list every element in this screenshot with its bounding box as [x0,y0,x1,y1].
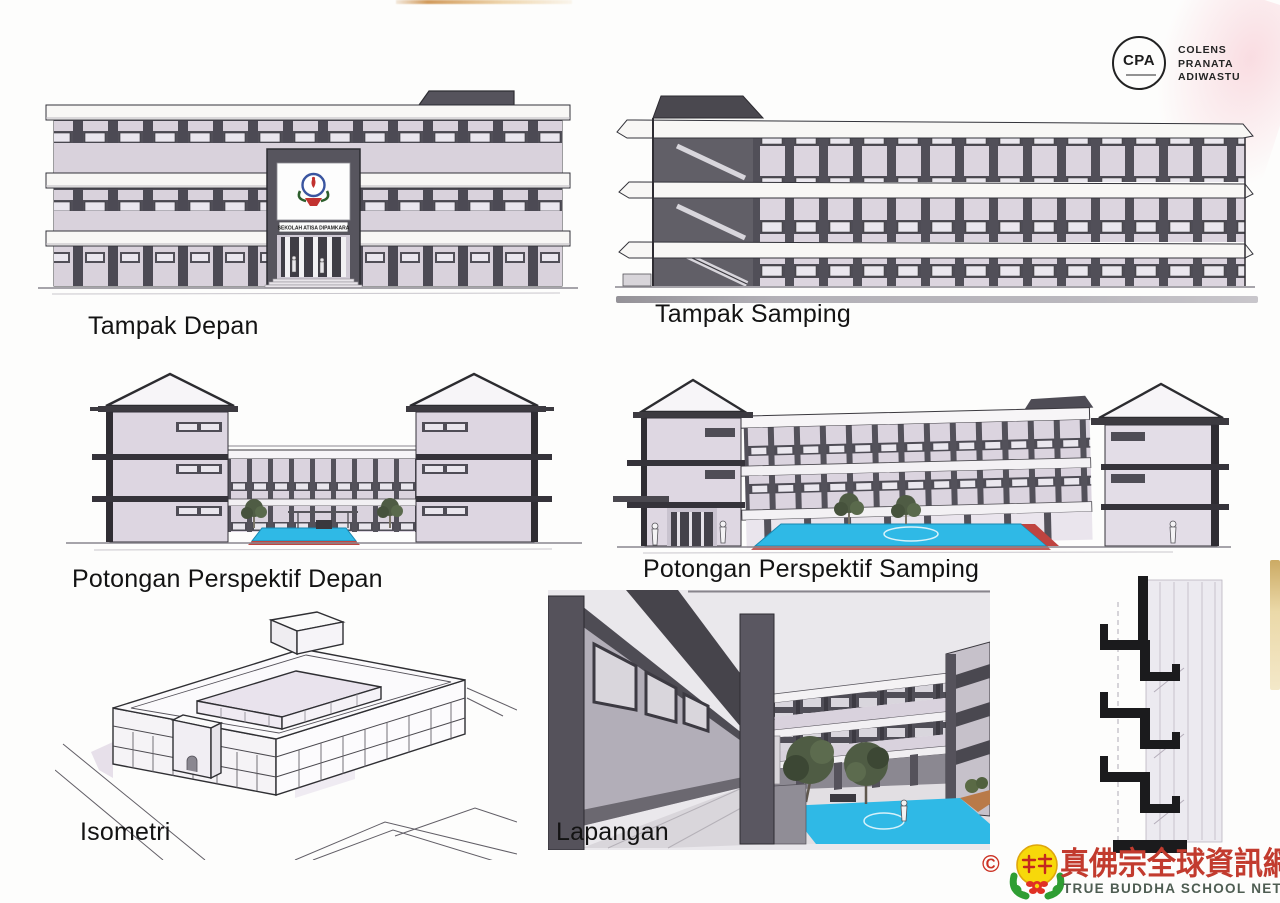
potongan-depan-drawing [58,362,590,562]
watermark-copyright: © [982,851,1000,879]
cpa-firm-name: COLENS PRANATA ADIWASTU [1178,44,1240,85]
cpa-logo: CPA COLENS PRANATA ADIWASTU [1112,34,1262,98]
section-detail-drawing [1088,572,1256,860]
watermark-english-title: TRUE BUDDHA SCHOOL NET [1063,881,1280,896]
side-elevation [615,96,1255,287]
bench [830,794,856,802]
figure-lapangan [548,590,990,850]
lapangan-drawing [548,590,990,850]
section-perspective-front [66,374,582,550]
right-wing-cut [1091,384,1229,546]
cpa-firm-line-2: PRANATA [1178,58,1240,72]
school-name-banner: SEKOLAH ATISA DIPAMKARA [278,225,350,231]
true-buddha-badge [1006,840,1068,902]
person-figure [901,800,907,821]
front-elevation: SEKOLAH ATISA DIPAMKARA [38,91,578,294]
scan-artifact-top-strip [396,0,572,4]
right-wing [406,374,554,542]
courtyard-court [751,524,1059,550]
figure-section-detail [1088,572,1256,860]
label-potongan-samping: Potongan Perspektif Samping [643,555,979,584]
scan-artifact-right-strip [1270,560,1280,690]
entrance-tower: SEKOLAH ATISA DIPAMKARA [265,149,362,288]
podium [316,520,332,529]
label-tampak-samping: Tampak Samping [655,300,851,329]
section-perspective-side [613,380,1231,553]
label-tampak-depan: Tampak Depan [88,312,259,341]
stair-bay [623,138,753,286]
stepped-section [1100,576,1222,853]
label-isometri: Isometri [80,818,171,847]
figure-tampak-samping [615,88,1255,300]
cpa-firm-line-3: ADIWASTU [1178,71,1240,85]
cpa-subline [1126,74,1156,76]
left-wing-cut [613,380,753,546]
potongan-samping-drawing [613,366,1235,556]
court-perspective [548,590,990,850]
tampak-depan-drawing: SEKOLAH ATISA DIPAMKARA [38,85,578,303]
school-crest [299,174,328,206]
cpa-firm-line-1: COLENS [1178,44,1240,58]
figure-potongan-depan [58,362,590,562]
label-lapangan: Lapangan [556,818,669,847]
figure-potongan-samping [613,366,1235,556]
near-column [548,596,584,850]
label-potongan-depan: Potongan Perspektif Depan [72,565,383,594]
cpa-initials: CPA [1114,52,1164,69]
left-wing [90,374,238,542]
cpa-logo-circle: CPA [1112,36,1166,90]
scanned-sheet: SEKOLAH ATISA DIPAMKARA [0,0,1280,903]
back-stair-tower [271,612,343,654]
watermark-chinese-title: 真佛宗全球資訊網 [1060,838,1278,883]
figure-tampak-depan: SEKOLAH ATISA DIPAMKARA [38,85,578,303]
tampak-samping-drawing [615,88,1255,300]
front-entrance-tower [173,715,221,778]
mid-column [740,614,774,844]
